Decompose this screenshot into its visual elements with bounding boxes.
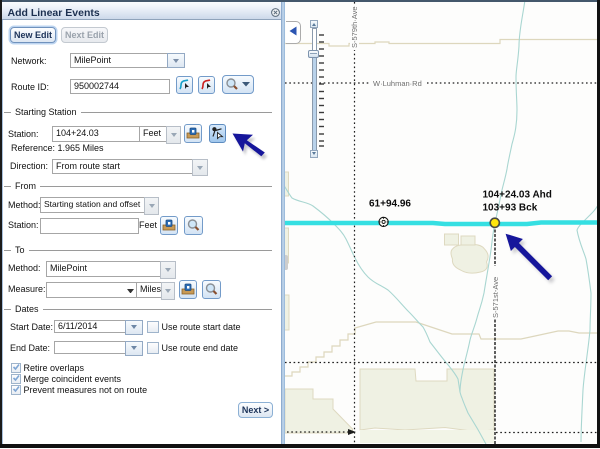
svg-text:W·Luhman·Rd: W·Luhman·Rd (373, 79, 422, 88)
svg-text:103+93 Bck: 103+93 Bck (483, 203, 538, 214)
svg-text:S-571st-Ave: S-571st-Ave (491, 277, 500, 318)
svg-text:104+24.03 Ahd: 104+24.03 Ahd (483, 190, 552, 201)
svg-text:61+94.96: 61+94.96 (369, 199, 411, 210)
svg-text:S-579th·Ave: S-579th·Ave (350, 6, 359, 48)
